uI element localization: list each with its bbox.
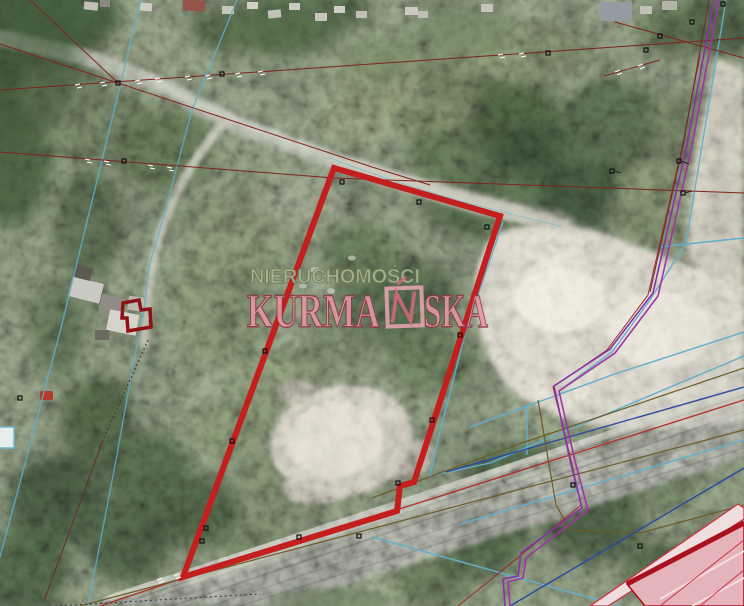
svg-text:SKA: SKA	[424, 285, 488, 338]
svg-text:KURMA: KURMA	[247, 285, 380, 338]
